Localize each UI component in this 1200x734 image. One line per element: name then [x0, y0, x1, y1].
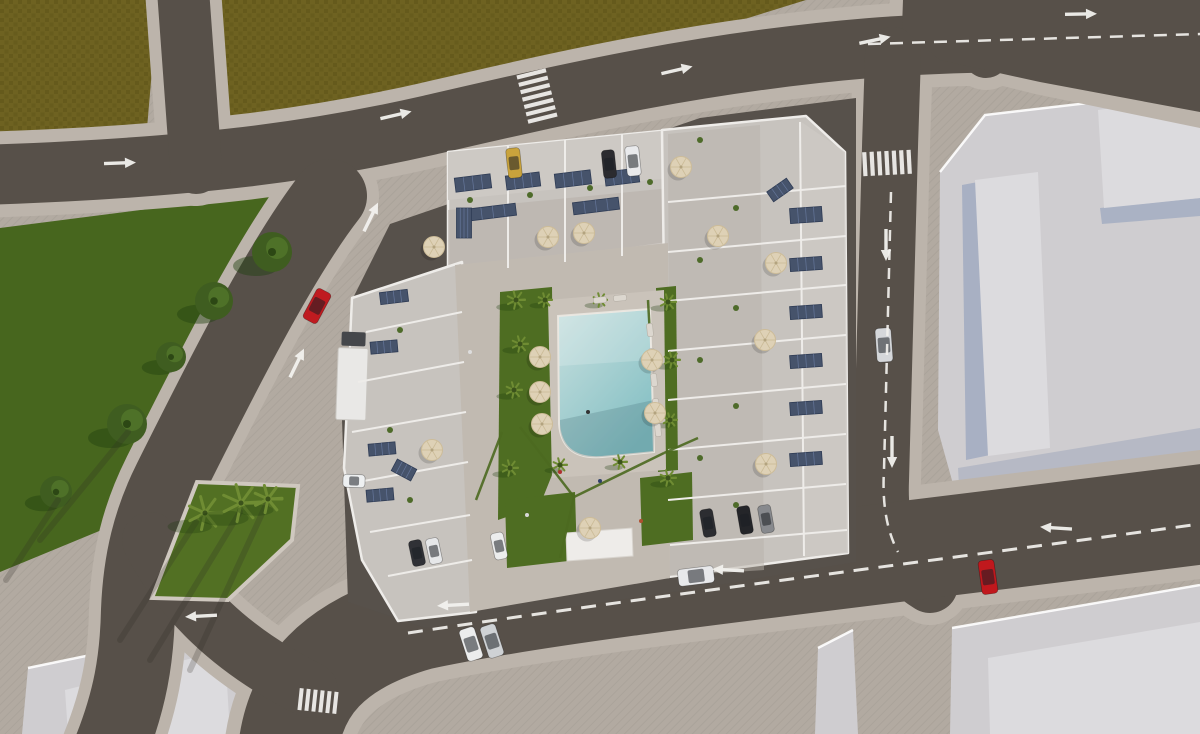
solar-panel [790, 400, 823, 415]
plant [397, 327, 403, 333]
plant [697, 455, 703, 461]
solar-panel [790, 451, 823, 466]
car [875, 327, 893, 362]
plant [407, 497, 413, 503]
solar-panel [790, 353, 823, 368]
sun-lounger [646, 323, 653, 337]
solar-panel [790, 304, 823, 319]
plant [733, 305, 739, 311]
solar-panel [790, 256, 823, 271]
site-plan-svg [0, 0, 1200, 734]
car [343, 474, 365, 488]
plant [697, 257, 703, 263]
person [525, 513, 529, 517]
solar-panel [457, 208, 472, 238]
solar-panel [370, 340, 398, 354]
sun-lounger [593, 296, 607, 303]
sun-lounger [650, 373, 657, 387]
plant [587, 185, 593, 191]
person [468, 350, 472, 354]
neighbor-roof-slab [975, 172, 1050, 456]
person [558, 470, 562, 474]
plant [647, 179, 653, 185]
solar-panel [790, 206, 823, 223]
person [586, 410, 590, 414]
car [601, 149, 617, 178]
plant [527, 192, 533, 198]
car [624, 145, 641, 176]
car [505, 147, 522, 178]
aerial-site-render [0, 0, 1200, 734]
plant [697, 137, 703, 143]
person [639, 519, 643, 523]
courtyard-lawn-west [498, 287, 554, 520]
solar-panel [366, 488, 394, 502]
plant [733, 403, 739, 409]
plant [733, 205, 739, 211]
person [598, 479, 602, 483]
solar-panel [368, 442, 396, 456]
pool-highlight [558, 309, 652, 366]
plant [697, 357, 703, 363]
sun-lounger [613, 294, 627, 301]
plant [467, 197, 473, 203]
plant [387, 427, 393, 433]
